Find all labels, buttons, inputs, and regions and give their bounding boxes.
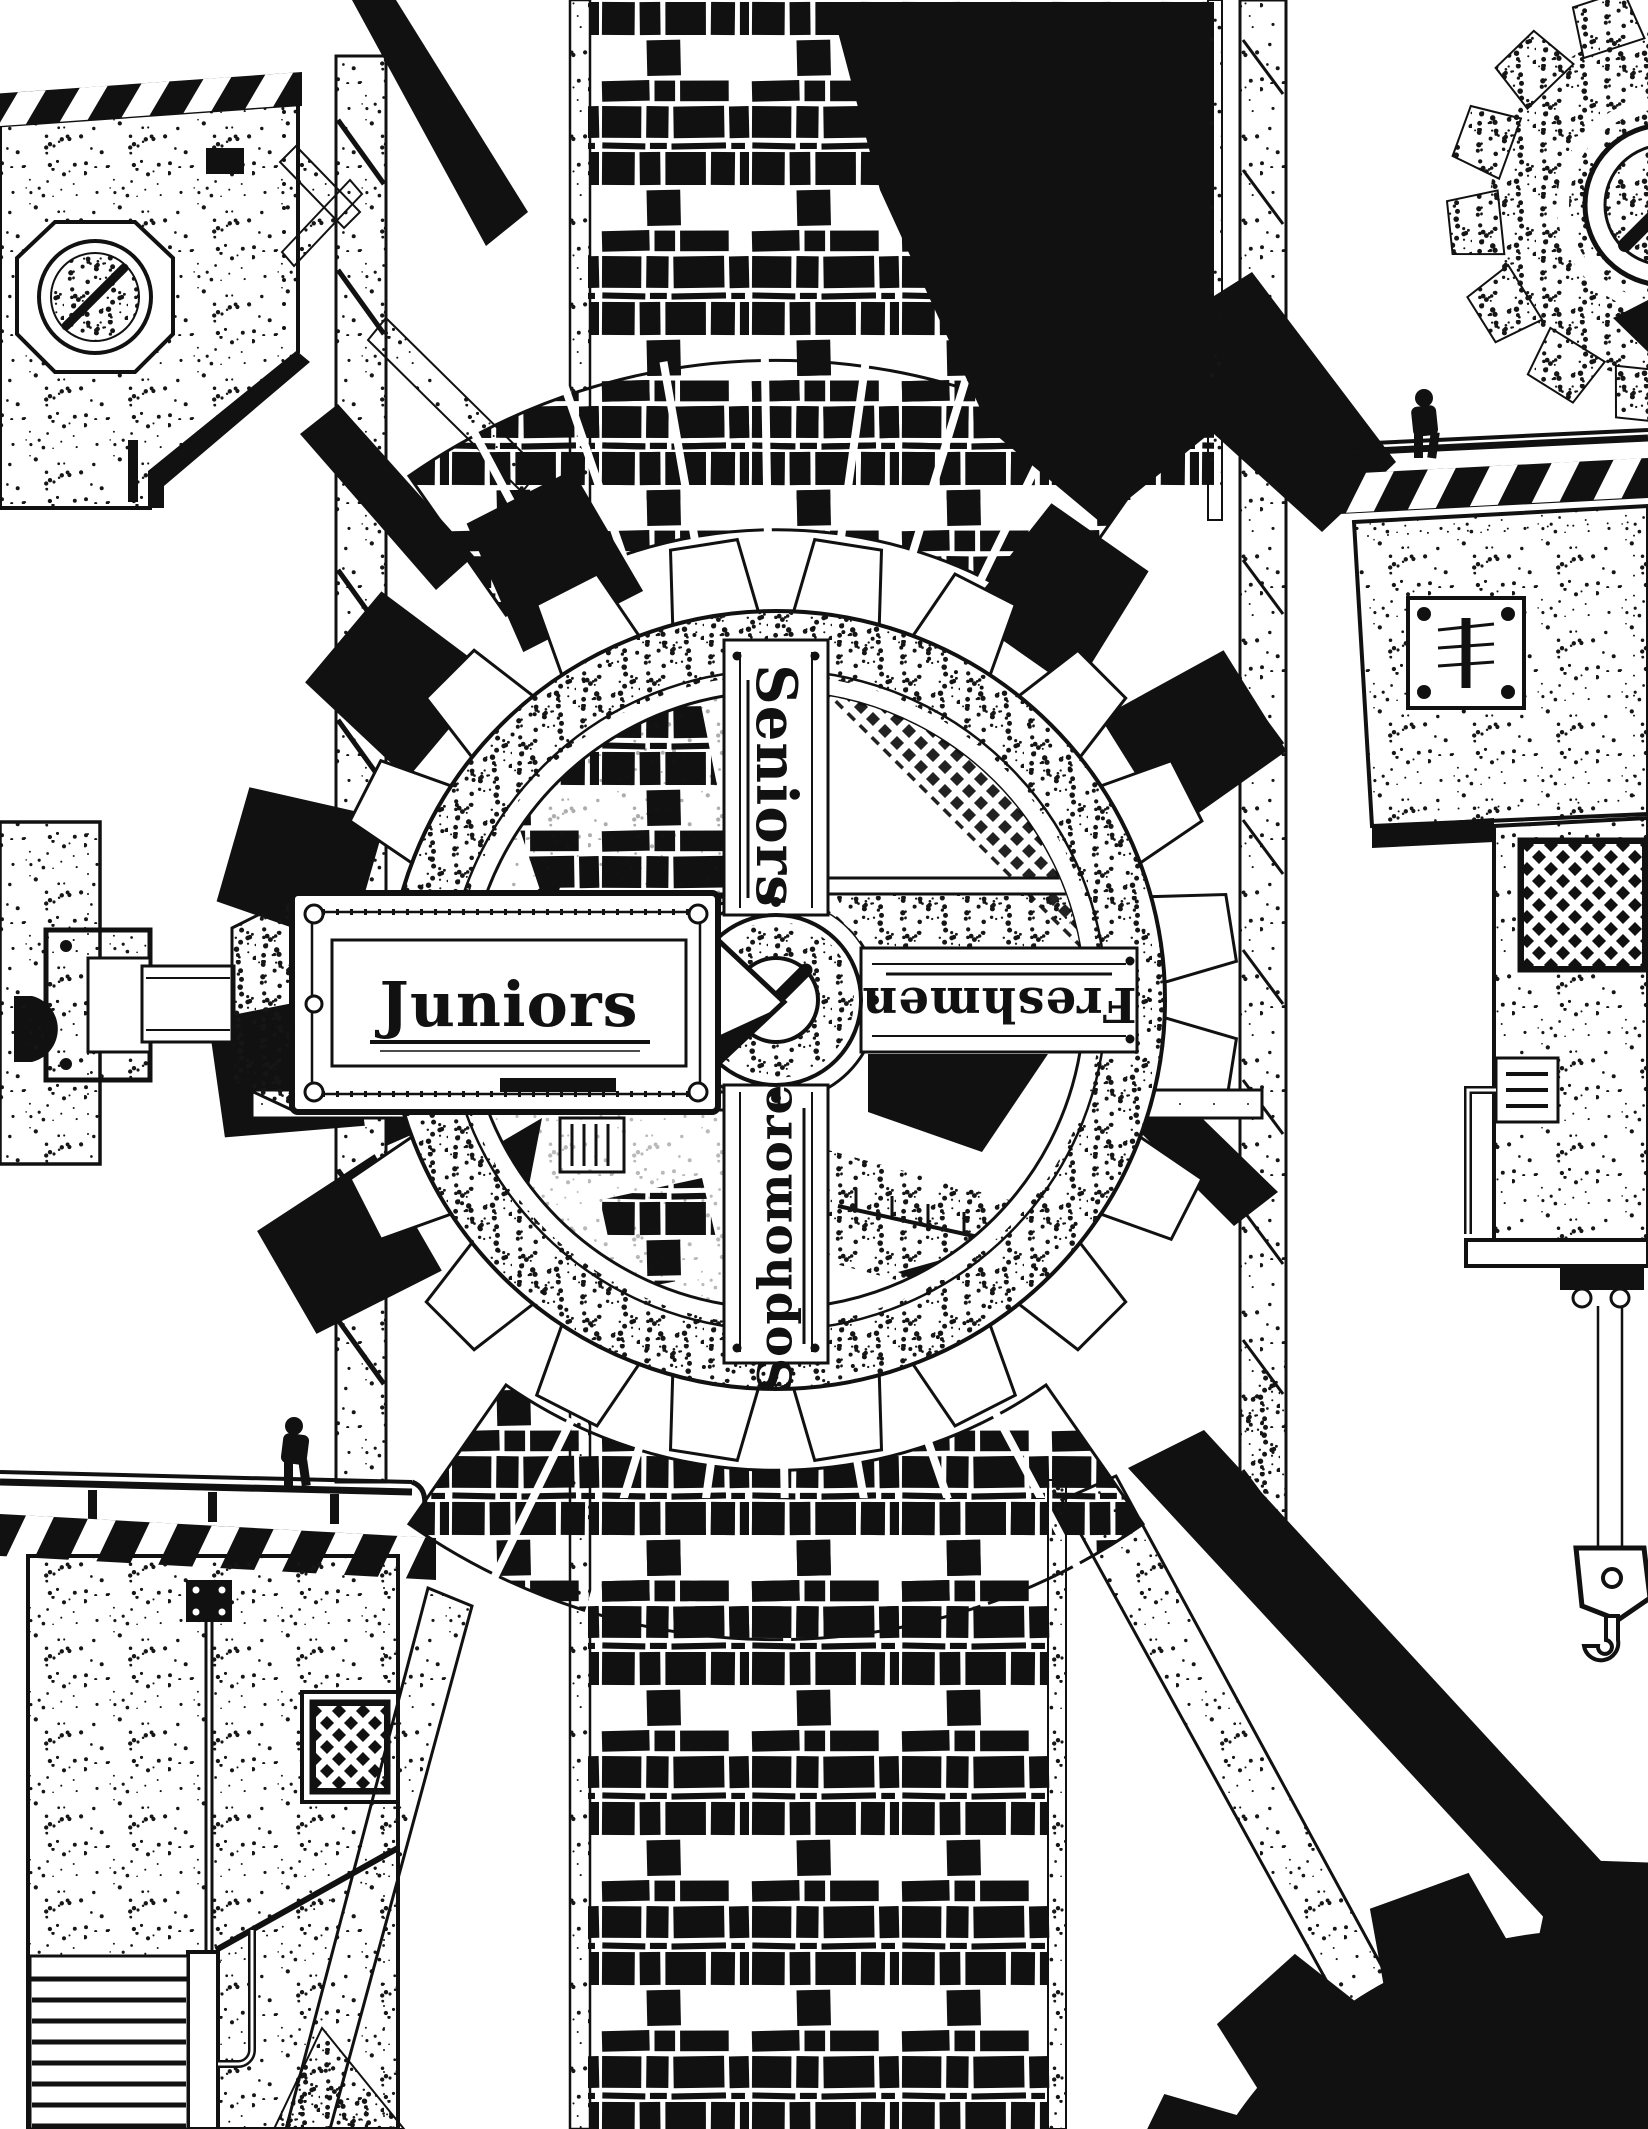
machinery-illustration: Seniors Freshmen Sophomores — [0, 0, 1648, 2129]
right-mosaic-rail — [1208, 0, 1222, 520]
spoke-label-sophomores: Sophomores — [749, 1056, 804, 1392]
bottom-column-right-rail — [1048, 1480, 1066, 2129]
housing-tab — [206, 148, 244, 174]
hook-block — [1576, 1548, 1648, 1620]
spoke-right-freshmen: Freshmen — [861, 948, 1137, 1052]
spoke-top-seniors: Seniors — [724, 640, 828, 915]
spoke-label-freshmen: Freshmen — [861, 976, 1136, 1032]
corner-beam — [188, 1952, 218, 2129]
spoke-bottom-sophomores: Sophomores — [724, 1056, 828, 1392]
piston-cone — [232, 898, 292, 1110]
slat-vent — [30, 1980, 188, 2129]
crane-trolley — [1560, 1266, 1644, 1290]
pipe-plate — [186, 1580, 232, 1622]
spoke-label-seniors: Seniors — [743, 664, 809, 907]
spoke-label-juniors: Juniors — [375, 968, 639, 1041]
yearbook-illustration-page: Seniors Freshmen Sophomores — [0, 0, 1648, 2129]
right-vertical-girder — [1240, 0, 1286, 1562]
